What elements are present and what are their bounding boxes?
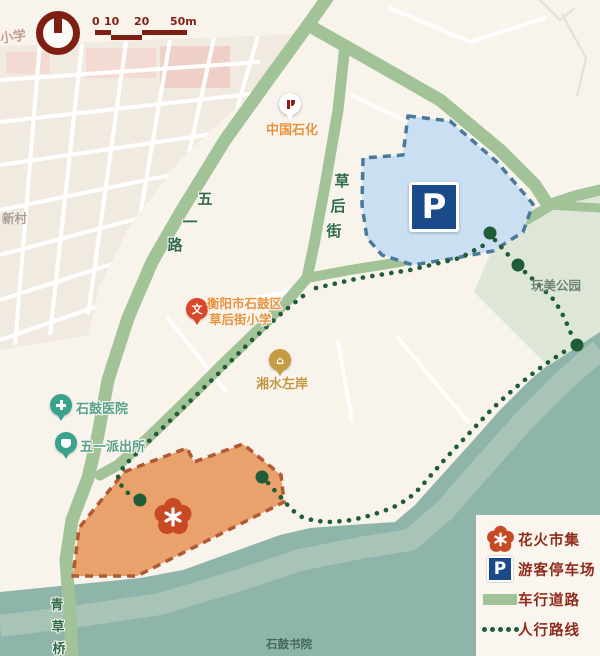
medical-cross-icon (55, 399, 67, 411)
legend-label-parking: 游客停车场 (518, 559, 596, 580)
police-label: 五一派出所 (80, 436, 145, 455)
legend-label-footpath: 人行路线 (518, 619, 580, 640)
legend-row-market: 花火市集 (482, 525, 600, 553)
riverside-pin: ⌂ (269, 349, 291, 371)
parking-icon: P (487, 556, 513, 582)
scale-tick: 0 (92, 15, 100, 28)
footpath-icon (482, 627, 519, 632)
fireworks-market-map: 0 10 20 50m 五一路 草后街 青草桥 中国石化 文 衡阳市石鼓区 草后… (0, 0, 600, 656)
parking-sign: P (409, 182, 459, 232)
route-node (512, 259, 525, 272)
hospital-pin (50, 394, 72, 416)
legend-label-market: 花火市集 (518, 529, 580, 550)
road-icon (483, 594, 517, 605)
school-glyph: 文 (192, 301, 203, 317)
route-node (571, 339, 584, 352)
legend-row-footpath: 人行路线 (482, 616, 600, 644)
fuel-icon (285, 99, 296, 110)
scale-tick: 50m (170, 15, 197, 28)
riverside-label: 湘水左岸 (256, 373, 308, 392)
qingcao-bridge-label: 青草桥 (49, 594, 65, 610)
northeast-road-branch2 (548, 205, 600, 208)
school-label-line2: 草后街小学 (209, 309, 272, 328)
house-icon: ⌂ (276, 354, 284, 367)
caohou-street-label: 草后街 (334, 170, 350, 186)
scale-bar-segment (95, 30, 111, 35)
scale-tick: 20 (134, 15, 149, 28)
scale-tick: 10 (104, 15, 119, 28)
sinopec-pin (279, 93, 301, 115)
school-pin: 文 (186, 298, 208, 320)
parking-letter: P (422, 187, 447, 227)
hospital-label: 石鼓医院 (76, 398, 128, 417)
legend-label-road: 车行道路 (518, 589, 580, 610)
park-label: 玩美公园 (531, 275, 581, 294)
sinopec-label: 中国石化 (266, 119, 318, 138)
legend-row-parking: P 游客停车场 (482, 555, 600, 583)
scale-bar-segment (142, 30, 187, 35)
police-badge-icon (61, 439, 71, 448)
village-fragment-label: 新村 (2, 208, 27, 227)
pink-block (6, 52, 50, 74)
legend-row-road: 车行道路 (482, 586, 600, 614)
route-node (134, 494, 147, 507)
legend: 花火市集 P 游客停车场 车行道路 人行路线 (476, 515, 600, 656)
route-node (256, 471, 269, 484)
north-compass-icon (36, 11, 80, 55)
school-fragment-label: 小学 (0, 24, 27, 46)
route-node (484, 227, 497, 240)
legend-parking-letter: P (494, 559, 506, 579)
scale-bar-segment (111, 35, 142, 40)
academy-label: 石鼓书院 (266, 636, 312, 652)
wuyi-road-label: 五一路 (197, 188, 213, 204)
police-pin (55, 432, 77, 454)
flower-icon (482, 525, 518, 554)
